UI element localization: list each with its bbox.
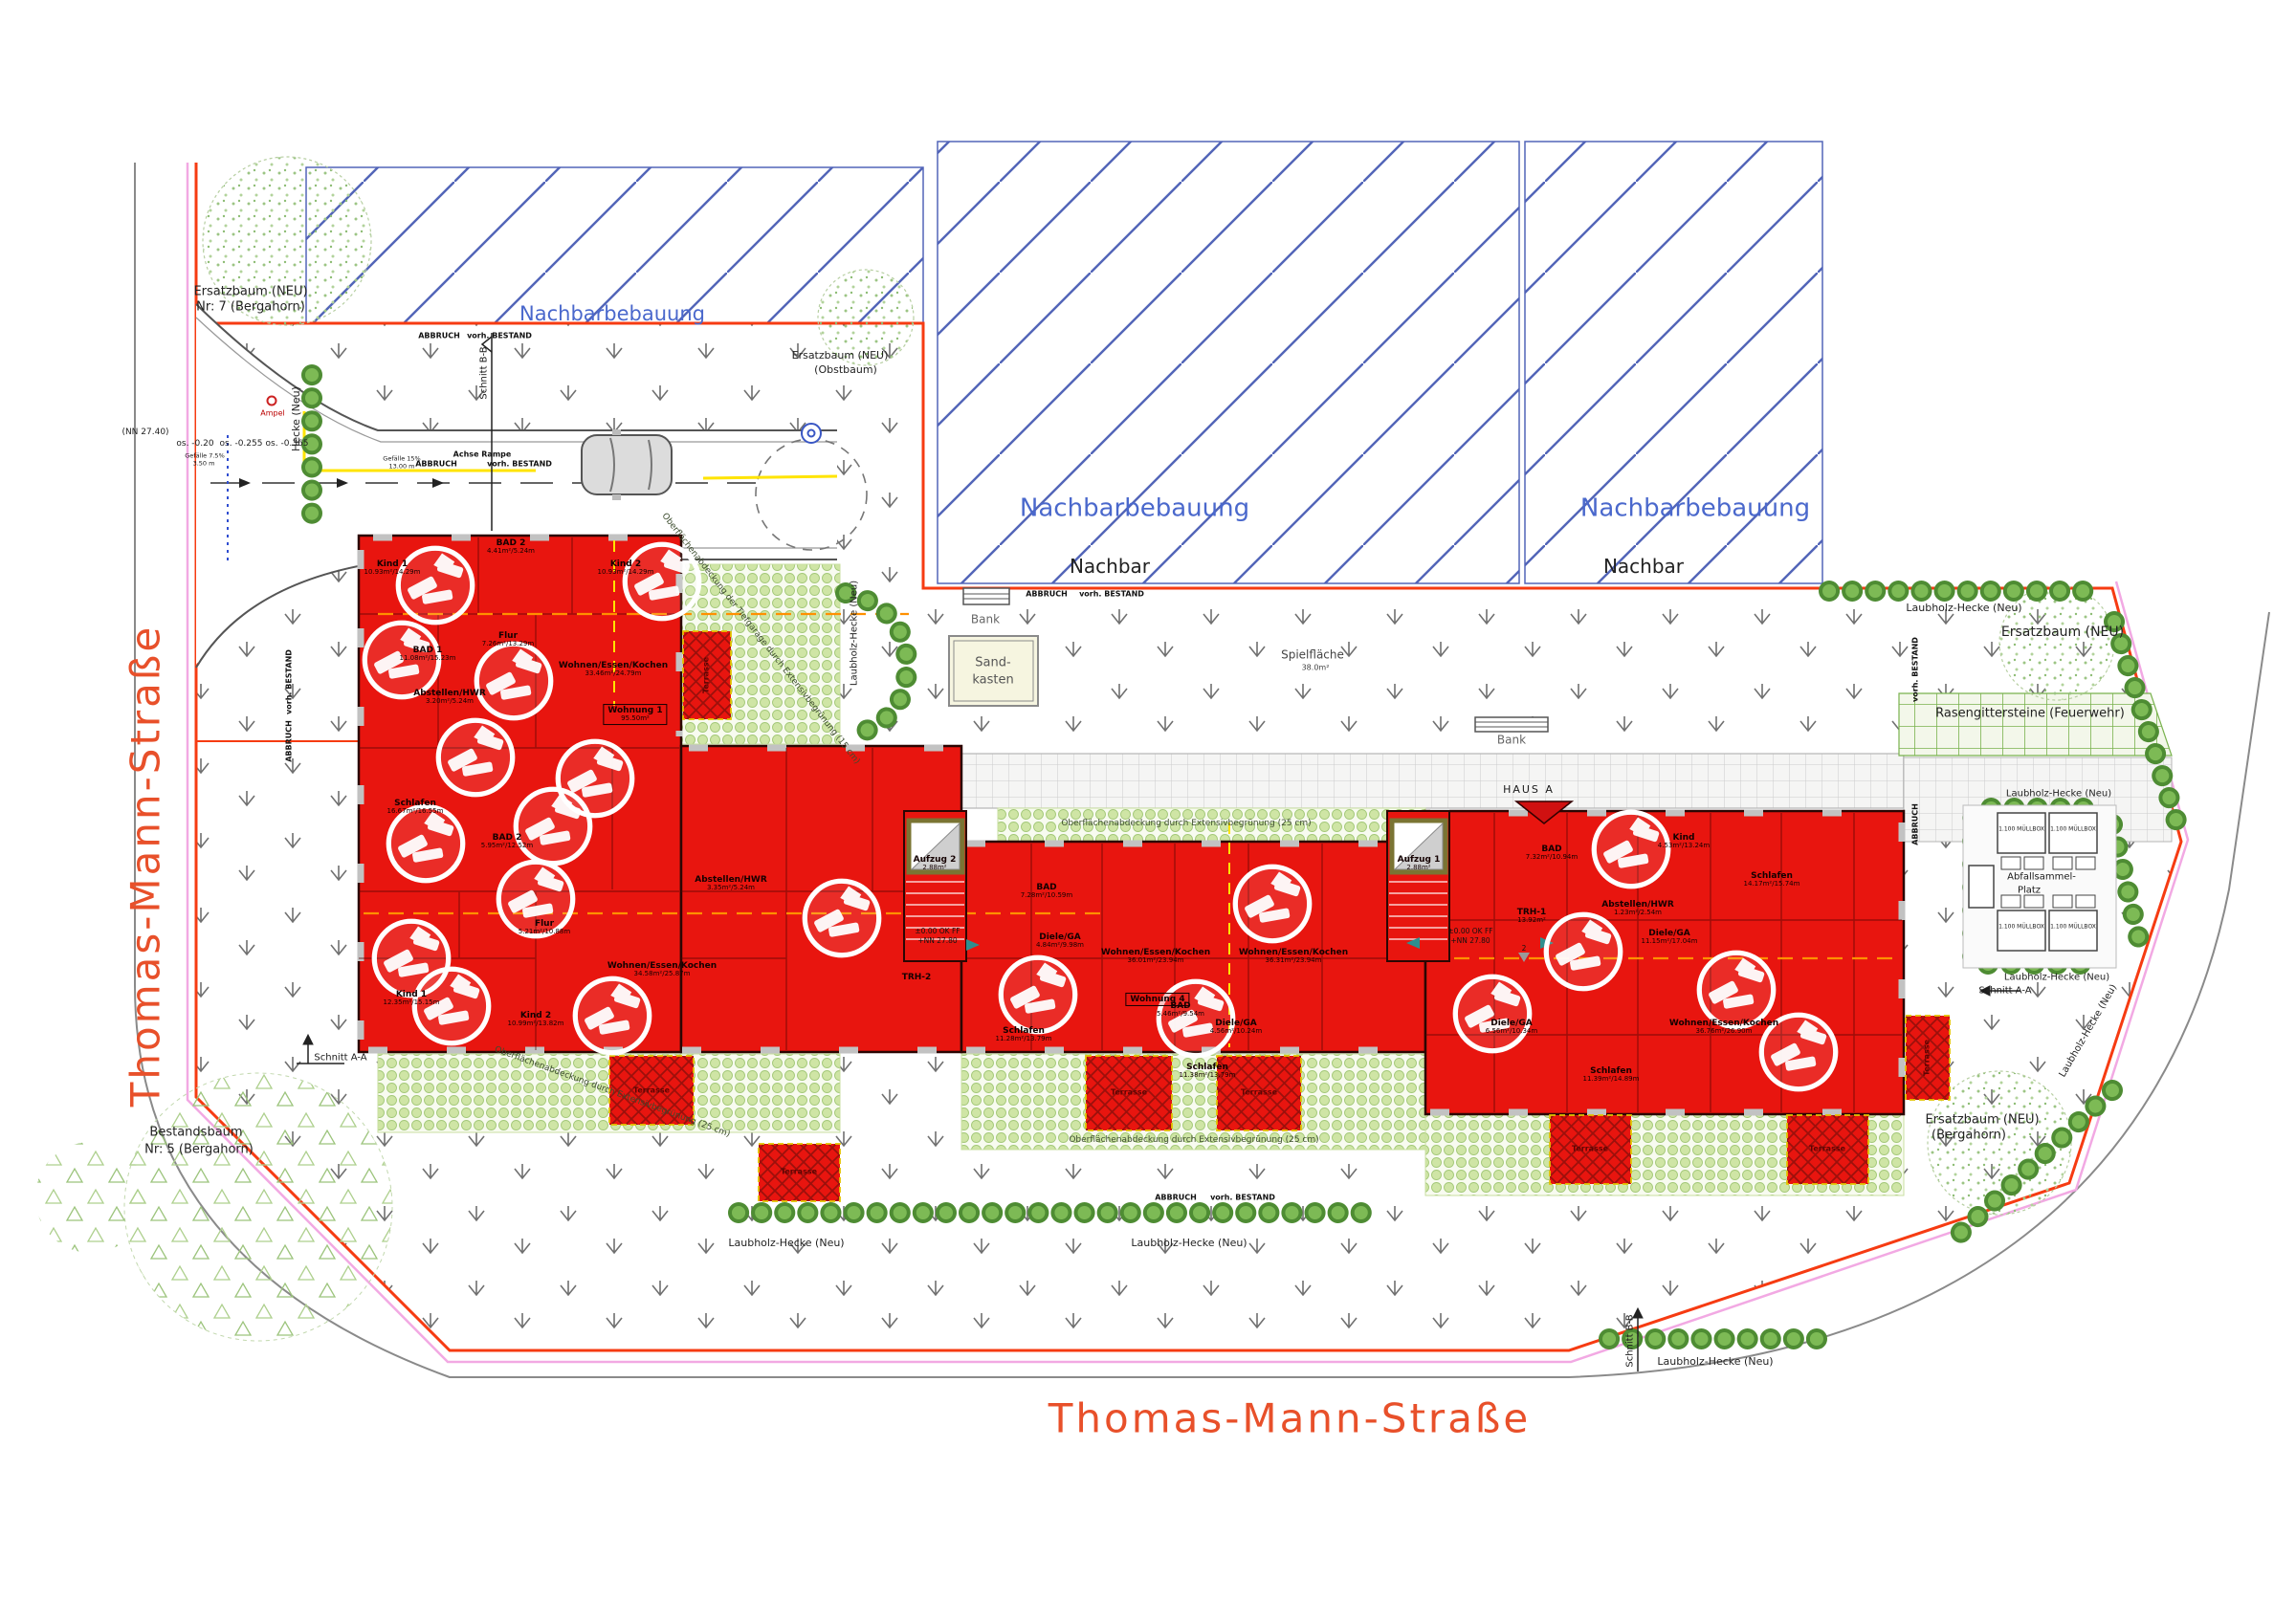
room-area: 4.53m²/13.24m — [1658, 843, 1710, 850]
room-area: 10.99m²/13.82m — [508, 1020, 564, 1028]
bench-label: Bank — [1497, 734, 1526, 746]
abbruch-label: ABBRUCH — [1026, 591, 1068, 600]
abbruch-label: ABBRUCH — [415, 461, 457, 470]
ramp-axis-label: Achse Rampe — [453, 451, 512, 460]
hedge-label: Laubholz-Hecke (Neu) — [849, 581, 859, 686]
section-label: Schnitt A-A — [1978, 985, 2031, 996]
bestand-label: vorh. BESTAND — [1210, 1195, 1275, 1203]
terrace-label: Terrasse — [1809, 1146, 1845, 1154]
slope-level-label: os. -0.255 — [220, 439, 263, 449]
fire-lane-label: Rasengittersteine (Feuerwehr) — [1935, 708, 2125, 722]
room-label: Abstellen/HWR3.20m²/5.24m — [413, 689, 486, 706]
traffic-light-label: Ampel — [260, 410, 285, 419]
room-area: 12.35m²/15.15m — [384, 999, 440, 1007]
room-label: Schlafen11.38m²/13.79m — [1180, 1063, 1236, 1080]
room-label: Flur5.21m²/10.88m — [519, 919, 570, 936]
room-area: 11.38m²/13.79m — [1180, 1072, 1236, 1080]
hedge-label: Laubholz-Hecke (Neu) — [2004, 972, 2109, 982]
bestand-label: vorh. BESTAND — [487, 461, 552, 470]
hedge-label: Laubholz-Hecke (Neu) — [1131, 1238, 1247, 1249]
section-label: Schnitt B-B — [1624, 1314, 1635, 1367]
sandbox-label: Sand- — [975, 657, 1010, 671]
room-label: Kind4.53m²/13.24m — [1658, 833, 1710, 850]
room-area: 4.41m²/5.24m — [487, 548, 535, 556]
room-area: 7.28m²/10.59m — [1021, 892, 1072, 900]
street-label-left: Thomas-Mann-Straße — [122, 625, 167, 1107]
room-label: Schlafen11.28m²/13.79m — [996, 1026, 1052, 1043]
tree-label: Ersatzbaum (NEU) — [792, 350, 889, 362]
terrace-label: Terrasse — [1241, 1089, 1277, 1098]
room-label: BAD7.32m²/10.94m — [1526, 844, 1578, 862]
level-label: ±0.00 OK FF — [915, 928, 960, 935]
room-label: BAD 25.95m²/12.52m — [481, 833, 533, 850]
room-area: 33.46m²/24.79m — [559, 670, 668, 678]
terrace-label: Terrasse — [1572, 1146, 1608, 1154]
room-area: 5.95m²/12.52m — [481, 843, 533, 850]
bestand-label: vorh. BESTAND — [467, 333, 532, 341]
terrace-label: Terrasse — [1111, 1089, 1147, 1098]
stairwell-area: 13.92m² — [1517, 917, 1547, 925]
room-area: 34.58m²/25.87m — [607, 971, 717, 978]
room-area: 36.76m²/26.90m — [1669, 1028, 1778, 1036]
room-label: Flur7.26m²/13.29m — [482, 631, 534, 648]
room-label: Diele/GA6.56m²/10.34m — [1486, 1019, 1537, 1036]
tree-label: Ersatzbaum (NEU) — [1925, 1114, 2039, 1129]
room-label: BAD 111.08m²/15.23m — [400, 646, 456, 663]
room-area: 7.32m²/10.94m — [1526, 854, 1578, 862]
tree-label: Ersatzbaum (NEU) — [193, 286, 307, 300]
section-label: Schnitt B-B — [478, 346, 489, 399]
neighbor-area-label: Nachbarbebauung — [1580, 494, 1810, 522]
abbruch-label: ABBRUCH — [418, 333, 460, 341]
slope-level-label: os. -0.365 — [266, 439, 309, 449]
abbruch-label: ABBRUCH — [286, 720, 295, 762]
terrace-label: Terrasse — [633, 1087, 670, 1096]
hedge-label: Laubholz-Hecke (Neu) — [2058, 982, 2120, 1079]
elevator-label: Aufzug 1 2.88m² — [1398, 855, 1441, 872]
room-label: Diele/GA11.15m²/17.04m — [1642, 929, 1698, 946]
room-area: 4.56m²/10.24m — [1210, 1028, 1262, 1036]
elevator-area: 2.88m² — [1398, 865, 1441, 872]
room-area: 5.21m²/10.88m — [519, 929, 570, 936]
room-area: 11.08m²/15.23m — [400, 655, 456, 663]
room-area: 4.84m²/9.98m — [1036, 942, 1084, 950]
tree-label: Nr: 5 (Bergahorn) — [144, 1144, 254, 1158]
stairwell-name: TRH-2 — [902, 973, 932, 982]
stairwell-label: TRH-1 13.92m² — [1517, 908, 1547, 925]
hedge-label: Laubholz-Hecke (Neu) — [2006, 788, 2111, 799]
abbruch-label: ABBRUCH — [1912, 803, 1921, 845]
room-label: Diele/GA4.56m²/10.24m — [1210, 1019, 1262, 1036]
waste-area-label: Abfallsammel- — [2007, 871, 2076, 882]
bestand-label: vorh. BESTAND — [1079, 591, 1144, 600]
room-label: BAD 24.41m²/5.24m — [487, 538, 535, 556]
level-label: +NN 27.80 — [917, 937, 957, 945]
flat-area: 95.50m² — [607, 715, 662, 723]
elevator-area: 2.88m² — [914, 865, 957, 872]
room-area: 10.93m²/14.29m — [364, 569, 421, 577]
room-area: 11.28m²/13.79m — [996, 1036, 1052, 1043]
tree-label: Bestandsbaum — [149, 1127, 242, 1141]
room-label: Wohnen/Essen/Kochen33.46m²/24.79m — [559, 661, 668, 678]
terrace-label: Terrasse — [781, 1169, 817, 1177]
green-roof-label: Oberflächenabdeckung durch Extensivbegrü… — [1069, 1135, 1318, 1145]
label-overlay: Thomas-Mann-Straße Thomas-Mann-Straße Na… — [0, 0, 2296, 1623]
level-label: ±0.00 OK FF — [1447, 928, 1492, 935]
neighbor-area-label: Nachbarbebauung — [519, 303, 705, 326]
waste-bin-label: 1.100 MÜLLBOX — [2050, 827, 2096, 834]
room-area: 11.39m²/14.89m — [1583, 1076, 1640, 1084]
level-datum-label: (NN 27.40) — [121, 428, 168, 437]
terrace-label: Terrasse — [1924, 1040, 1932, 1076]
street-label-bottom: Thomas-Mann-Straße — [1049, 1395, 1531, 1440]
slope-length-label: 13.00 m — [388, 463, 414, 470]
hedge-label: Laubholz-Hecke (Neu) — [728, 1238, 844, 1249]
room-label: Abstellen/HWR1.23m²/2.54m — [1601, 900, 1674, 917]
room-label: Schlafen16.67m²/16.55m — [387, 799, 444, 816]
stair-count-label: 2 — [1522, 945, 1527, 953]
bestand-label: vorh. BESTAND — [1912, 637, 1921, 702]
tree-label: (Bergahorn) — [1932, 1130, 2006, 1144]
playground-label: Spielfläche — [1281, 648, 1344, 661]
waste-bin-label: 1.100 MÜLLBOX — [1998, 827, 2044, 834]
room-label: Kind 210.93m²/14.29m — [598, 559, 654, 577]
room-label: Kind 210.99m²/13.82m — [508, 1011, 564, 1028]
neighbor-edge-label: Nachbar — [1603, 556, 1684, 577]
neighbor-edge-label: Nachbar — [1070, 556, 1150, 577]
room-area: 3.20m²/5.24m — [413, 698, 486, 706]
tree-label: (Obstbaum) — [814, 364, 877, 376]
neighbor-area-label: Nachbarbebauung — [1020, 494, 1249, 522]
flat-label: Wohnung 1 95.50m² — [603, 704, 667, 725]
room-area: 14.17m²/15.74m — [1744, 881, 1800, 888]
green-roof-label: Oberflächenabdeckung der Tiefgarage durc… — [659, 512, 861, 766]
elevator-label: Aufzug 2 2.88m² — [914, 855, 957, 872]
room-area: 10.93m²/14.29m — [598, 569, 654, 577]
hedge-label: Laubholz-Hecke (Neu) — [1906, 603, 2021, 614]
room-area: 6.56m²/10.34m — [1486, 1028, 1537, 1036]
room-area: 1.23m²/2.54m — [1601, 910, 1674, 917]
bestand-label: vorh. BESTAND — [286, 649, 295, 714]
terrace-label: Terrasse — [703, 657, 712, 693]
room-label: BAD5.46m²/9.54m — [1157, 1001, 1204, 1019]
room-area: 16.67m²/16.55m — [387, 808, 444, 816]
room-area: 11.15m²/17.04m — [1642, 938, 1698, 946]
waste-area-label: Platz — [2018, 885, 2041, 895]
sandbox-label: kasten — [972, 674, 1013, 689]
level-label: +NN 27.80 — [1450, 937, 1490, 945]
playground-area: 38.0m² — [1302, 665, 1330, 673]
room-label: Wohnen/Essen/Kochen36.76m²/26.90m — [1669, 1019, 1778, 1036]
room-area: 5.46m²/9.54m — [1157, 1011, 1204, 1019]
hedge-label: Laubholz-Hecke (Neu) — [1657, 1356, 1773, 1368]
room-label: Wohnen/Essen/Kochen36.01m²/23.94m — [1101, 948, 1210, 965]
slope-length-label: 3.50 m — [193, 460, 215, 467]
room-label: Abstellen/HWR3.35m²/5.24m — [695, 875, 767, 892]
room-area: 36.31m²/23.94m — [1239, 957, 1348, 965]
room-label: Diele/GA4.84m²/9.98m — [1036, 932, 1084, 950]
abbruch-label: ABBRUCH — [1155, 1195, 1197, 1203]
green-roof-label: Oberflächenabdeckung durch Extensivbegrü… — [494, 1045, 732, 1140]
waste-bin-label: 1.100 MÜLLBOX — [1998, 925, 2044, 932]
bench-label: Bank — [971, 613, 1000, 625]
green-roof-label: Oberflächenabdeckung durch Extensivbegrü… — [1061, 819, 1311, 828]
tree-label: Ersatzbaum (NEU) — [2001, 625, 2124, 641]
room-area: 3.35m²/5.24m — [695, 885, 767, 892]
room-label: BAD7.28m²/10.59m — [1021, 883, 1072, 900]
haus-a-label: HAUS A — [1503, 784, 1555, 796]
room-area: 36.01m²/23.94m — [1101, 957, 1210, 965]
room-label: Kind 110.93m²/14.29m — [364, 559, 421, 577]
site-plan: Thomas-Mann-Straße Thomas-Mann-Straße Na… — [0, 0, 2296, 1623]
room-label: Wohnen/Essen/Kochen36.31m²/23.94m — [1239, 948, 1348, 965]
slope-level-label: os. -0.20 — [176, 439, 213, 449]
room-label: Wohnen/Essen/Kochen34.58m²/25.87m — [607, 961, 717, 978]
room-label: Kind 112.35m²/15.15m — [384, 990, 440, 1007]
room-label: Schlafen14.17m²/15.74m — [1744, 871, 1800, 888]
stairwell-label: TRH-2 — [902, 973, 932, 982]
tree-label: Nr: 7 (Bergahorn) — [196, 301, 305, 316]
waste-bin-label: 1.100 MÜLLBOX — [2050, 925, 2096, 932]
room-label: Schlafen11.39m²/14.89m — [1583, 1066, 1640, 1084]
section-label: Schnitt A-A — [314, 1052, 366, 1063]
room-area: 7.26m²/13.29m — [482, 641, 534, 648]
